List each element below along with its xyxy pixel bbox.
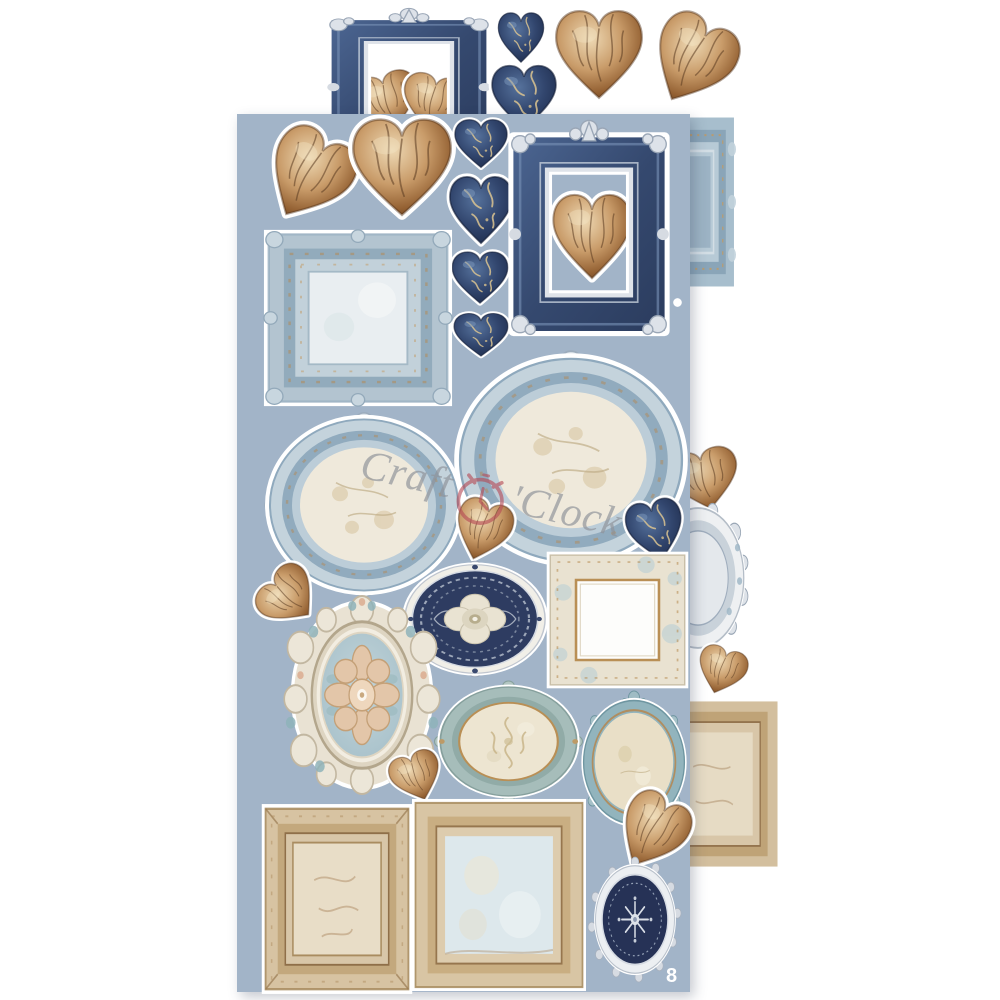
navy-lace-oval [588, 857, 682, 982]
tan-frame-portrait [261, 805, 413, 993]
registration-dot [673, 298, 682, 307]
page-number: 8 [666, 965, 677, 988]
navy-rect-frame-with-heart [505, 117, 673, 348]
cream-square-frame [546, 551, 689, 689]
tan-frame-square [412, 797, 586, 993]
navy-heart-1 [450, 117, 512, 173]
front-sheet-elements-layer [0, 0, 1000, 1000]
product-photo-stage: Craft 'Clock 8 [0, 0, 1000, 1000]
brown-heart-large-top [344, 114, 460, 226]
bluegreen-oval-frame [436, 681, 581, 802]
navy-heart-3 [447, 249, 513, 309]
blue-square-frame [263, 229, 453, 407]
